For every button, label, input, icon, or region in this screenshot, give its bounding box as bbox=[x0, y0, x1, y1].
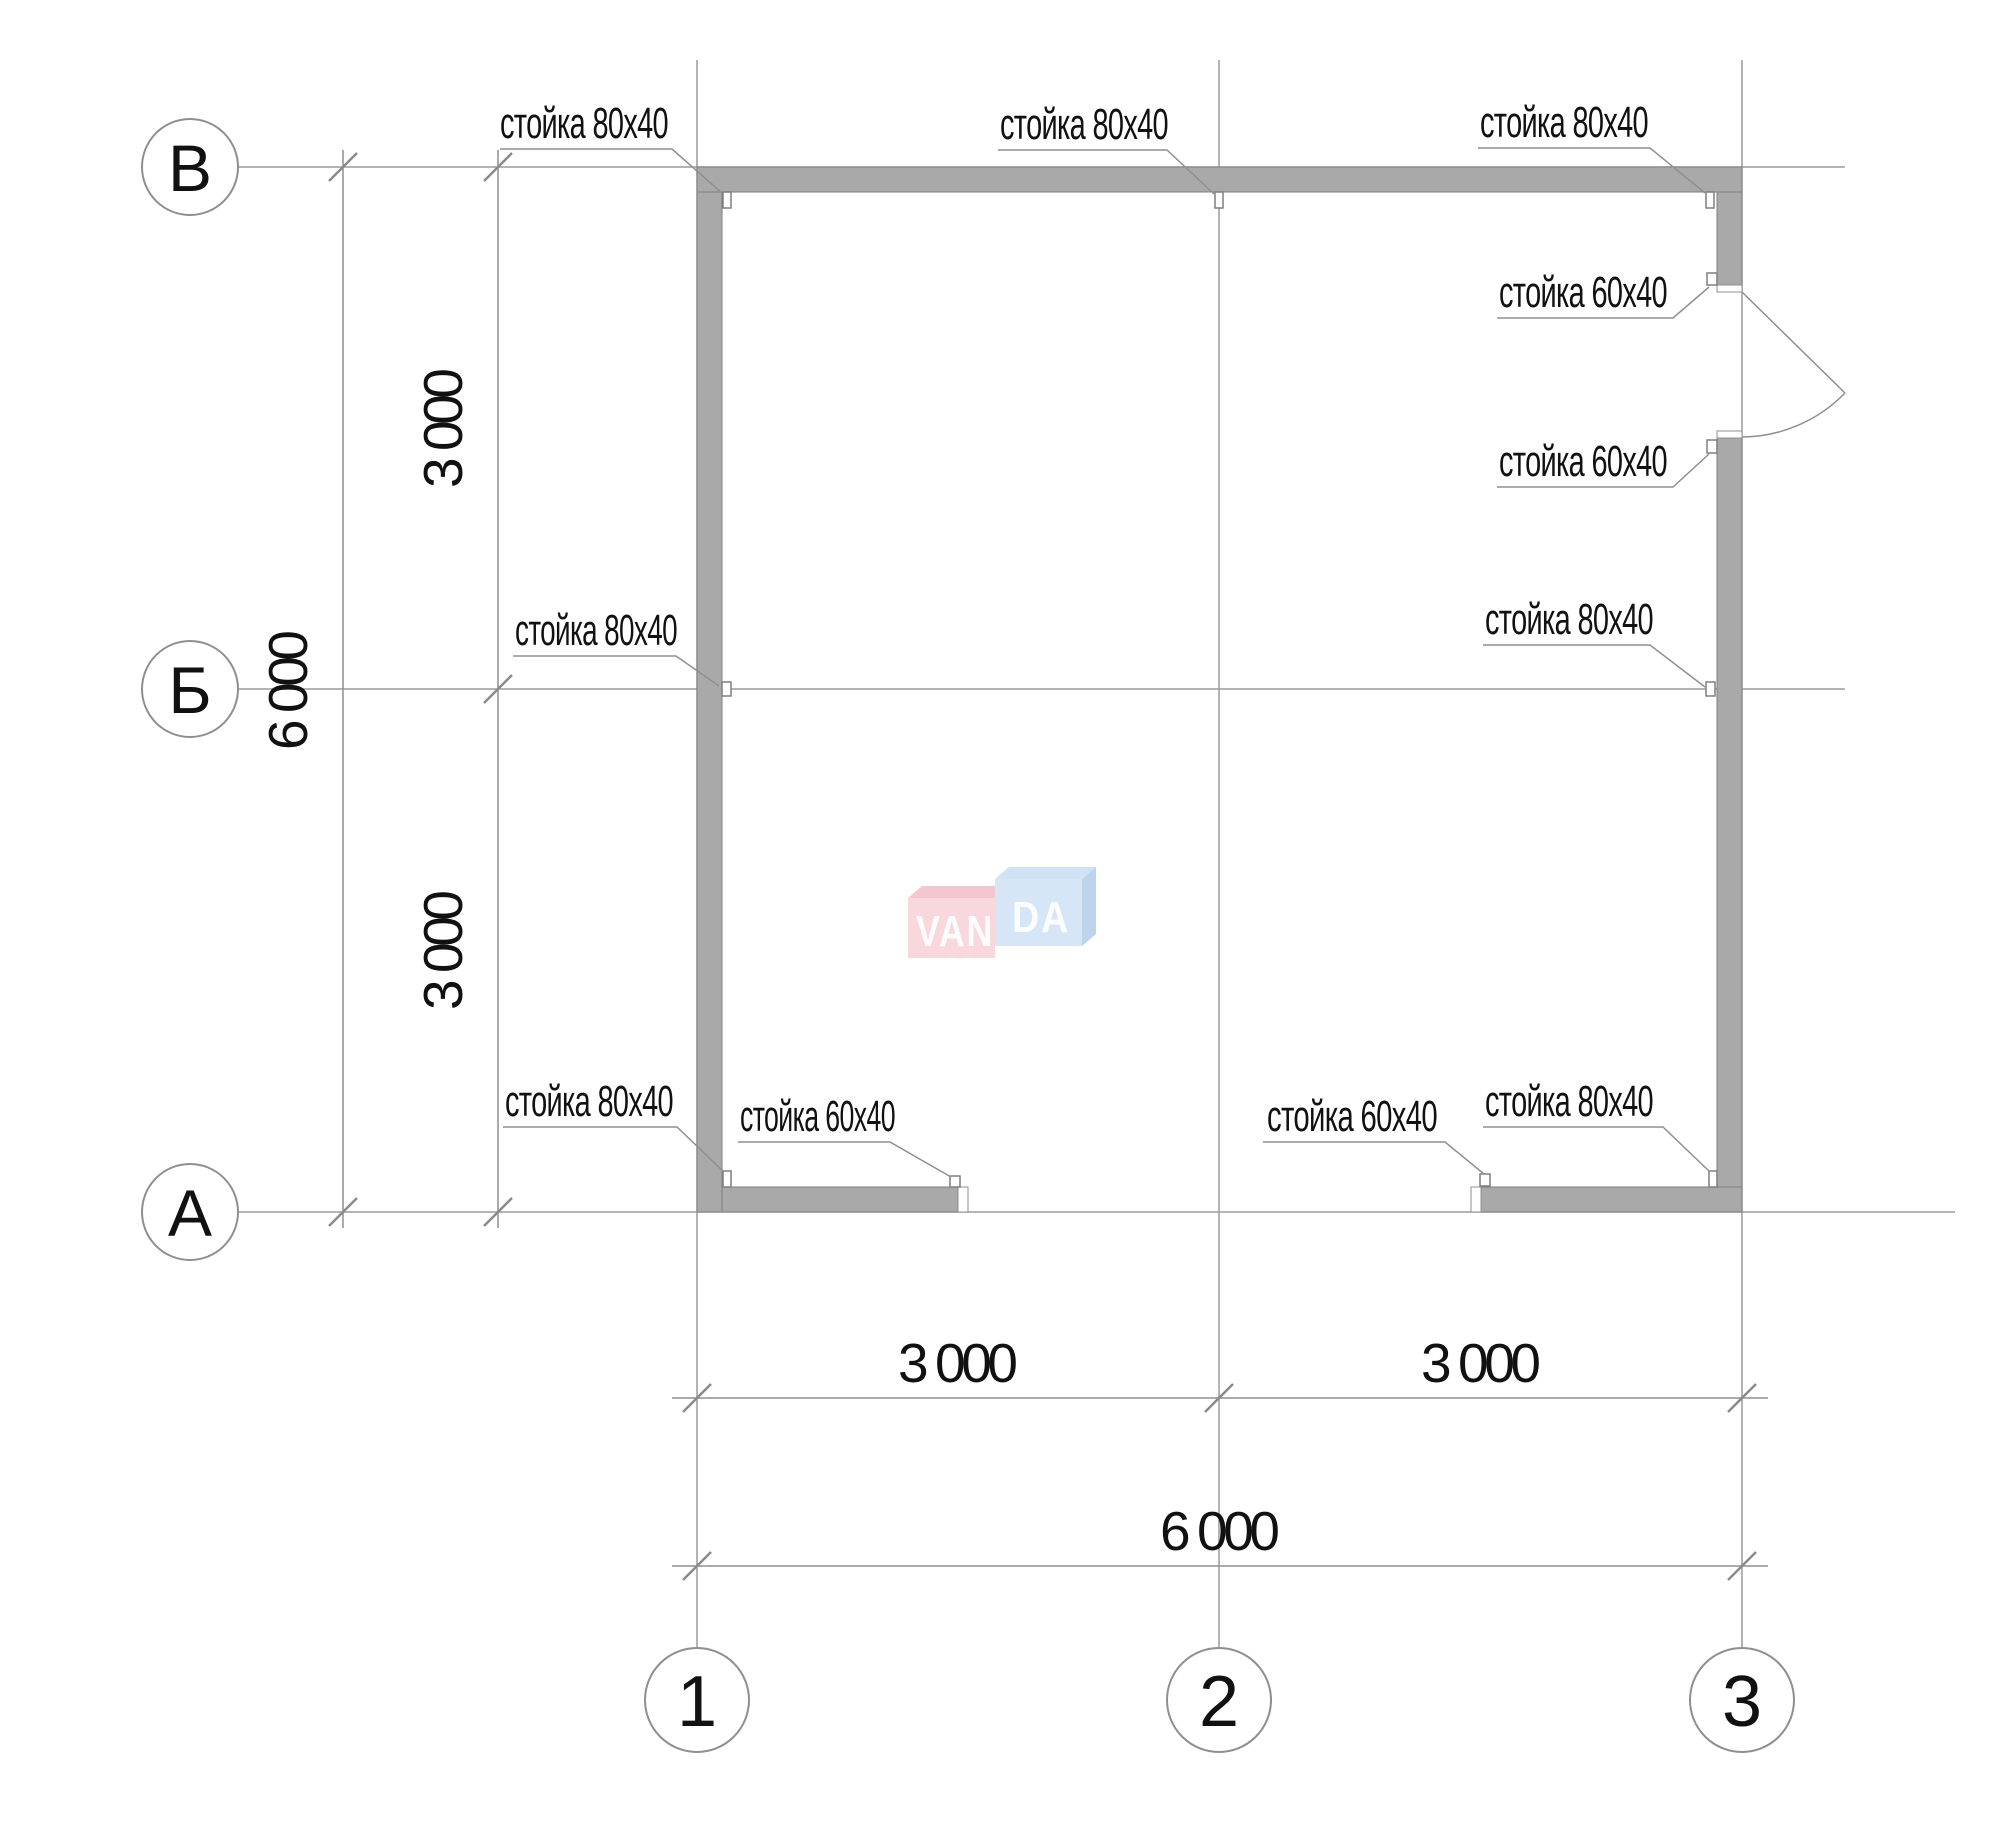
dimension-texts: 3 000 3 000 6 000 3 000 3 000 6 000 bbox=[257, 368, 1541, 1562]
post-door-upper bbox=[1707, 273, 1717, 285]
door-swing-arc bbox=[1742, 393, 1845, 437]
grid-col-label: 3 bbox=[1722, 1662, 1762, 1742]
logo-pink-top-face bbox=[908, 886, 1009, 898]
leader-label-door-lower: стойка 60х40 bbox=[1497, 437, 1709, 487]
wall-bottom-right bbox=[1481, 1187, 1742, 1212]
post-door-lower bbox=[1707, 440, 1717, 453]
door-leaf bbox=[1742, 292, 1845, 393]
leader-label-text: стойка 60х40 bbox=[1499, 268, 1667, 317]
leader-label-text: стойка 80х40 bbox=[1485, 1077, 1653, 1126]
post-bottom-left-60 bbox=[950, 1176, 960, 1187]
dim-text-bottom-left: 3 000 bbox=[898, 1332, 1018, 1394]
leader-label-text: стойка 60х40 bbox=[740, 1092, 895, 1141]
logo-text-da: DA bbox=[1012, 893, 1070, 942]
leader-label-mid-left: стойка 80х40 bbox=[513, 606, 719, 686]
leader-label-top-left: стойка 80х40 bbox=[500, 99, 722, 193]
post-bottom-left-80 bbox=[723, 1171, 731, 1187]
door bbox=[1742, 292, 1845, 437]
logo-blue-top-face bbox=[995, 867, 1096, 879]
wall-left bbox=[697, 192, 722, 1212]
grid-col-label: 1 bbox=[677, 1662, 717, 1742]
dim-text-left-overall: 6 000 bbox=[257, 630, 319, 750]
leader-label-text: стойка 80х40 bbox=[1480, 98, 1648, 147]
post-mid-right bbox=[1706, 682, 1715, 696]
vanda-watermark: VAN DA bbox=[908, 867, 1096, 958]
leader-label-text: стойка 80х40 bbox=[515, 606, 677, 655]
leader-label-bottom-left-80: стойка 80х40 bbox=[503, 1077, 724, 1172]
opening-jambs bbox=[958, 285, 1742, 1212]
dim-text-left-top: 3 000 bbox=[412, 368, 474, 488]
leader-label-text: стойка 60х40 bbox=[1267, 1092, 1437, 1141]
door-jamb-lower bbox=[1717, 431, 1742, 438]
leader-label-bottom-right-80: стойка 80х40 bbox=[1483, 1077, 1710, 1172]
dimension-lines bbox=[343, 150, 1768, 1566]
wall-bottom-left bbox=[722, 1187, 958, 1212]
wall-top bbox=[697, 167, 1742, 192]
grid-lines bbox=[238, 60, 1955, 1648]
dim-text-bottom-right: 3 000 bbox=[1421, 1332, 1541, 1394]
post-top-left bbox=[723, 192, 731, 208]
grid-row-label: Б bbox=[168, 653, 211, 727]
leader-label-bottom-left-60: стойка 60х40 bbox=[738, 1092, 951, 1177]
dim-text-bottom-overall: 6 000 bbox=[1160, 1500, 1280, 1562]
grid-col-label: 2 bbox=[1199, 1662, 1239, 1742]
leader-label-bottom-right-60: стойка 60х40 bbox=[1263, 1092, 1484, 1174]
grid-row-label: А bbox=[168, 1176, 212, 1250]
door-jamb-upper bbox=[1717, 285, 1742, 292]
leader-label-mid-right: стойка 80х40 bbox=[1483, 595, 1705, 687]
post-mid-left bbox=[722, 682, 731, 696]
logo-blue-side-face bbox=[1082, 867, 1096, 946]
bottom-opening-jamb-right bbox=[1471, 1187, 1481, 1212]
leader-label-text: стойка 80х40 bbox=[1485, 595, 1653, 644]
dimension-ticks bbox=[329, 153, 1756, 1580]
post-top-right bbox=[1706, 192, 1714, 208]
leader-label-text: стойка 80х40 bbox=[505, 1077, 673, 1126]
grid-row-label: В bbox=[168, 131, 212, 205]
logo-text-van: VAN bbox=[916, 907, 994, 956]
dim-text-left-bottom: 3 000 bbox=[412, 890, 474, 1010]
post-bottom-right-80 bbox=[1709, 1171, 1717, 1187]
wall-right-upper bbox=[1717, 192, 1742, 285]
bottom-opening-jamb-left bbox=[958, 1187, 968, 1212]
leader-label-text: стойка 60х40 bbox=[1499, 437, 1667, 486]
wall-right-lower bbox=[1717, 438, 1742, 1212]
post-bottom-right-60 bbox=[1480, 1174, 1490, 1186]
floor-plan-drawing: В Б А 1 2 3 3 000 3 000 6 000 3 000 3 00… bbox=[0, 0, 2000, 1834]
floor-plan-page: В Б А 1 2 3 3 000 3 000 6 000 3 000 3 00… bbox=[0, 0, 2000, 1834]
leader-labels: стойка 80х40 стойка 80х40 стойка 80х40 с… bbox=[500, 98, 1710, 1177]
post-top-middle bbox=[1215, 192, 1223, 208]
leader-label-text: стойка 80х40 bbox=[500, 99, 668, 148]
leader-label-text: стойка 80х40 bbox=[1000, 100, 1168, 149]
leader-label-door-upper: стойка 60х40 bbox=[1497, 268, 1709, 318]
